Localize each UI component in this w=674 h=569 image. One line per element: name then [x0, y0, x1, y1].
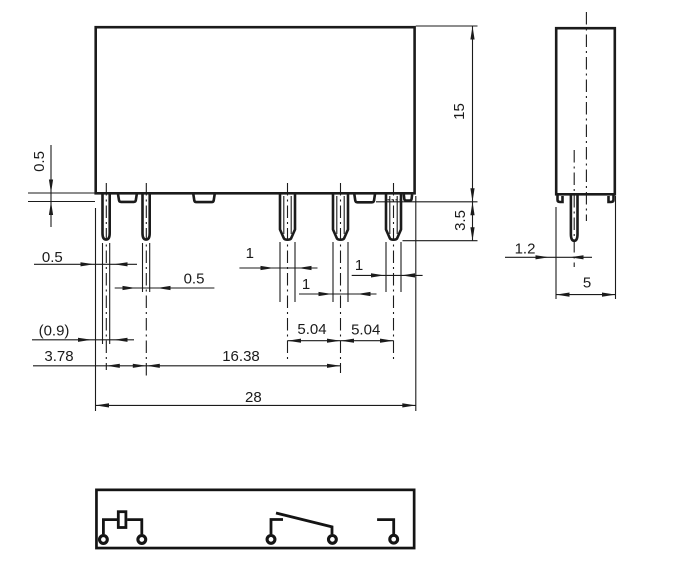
svg-text:1: 1 [302, 276, 310, 293]
svg-text:1.2: 1.2 [515, 240, 536, 257]
svg-text:1: 1 [355, 257, 363, 274]
svg-text:3.78: 3.78 [44, 348, 73, 365]
svg-text:0.5: 0.5 [184, 271, 205, 288]
svg-text:15: 15 [451, 103, 468, 120]
svg-text:3.5: 3.5 [452, 210, 469, 231]
svg-text:0.5: 0.5 [42, 249, 63, 266]
svg-text:0.5: 0.5 [31, 151, 48, 172]
svg-text:16.38: 16.38 [222, 348, 260, 365]
svg-text:5.04: 5.04 [297, 321, 326, 338]
svg-text:1: 1 [246, 245, 254, 262]
svg-text:5: 5 [583, 275, 591, 292]
svg-text:(0.9): (0.9) [39, 323, 70, 340]
svg-text:5.04: 5.04 [351, 321, 380, 338]
svg-text:28: 28 [245, 389, 262, 406]
